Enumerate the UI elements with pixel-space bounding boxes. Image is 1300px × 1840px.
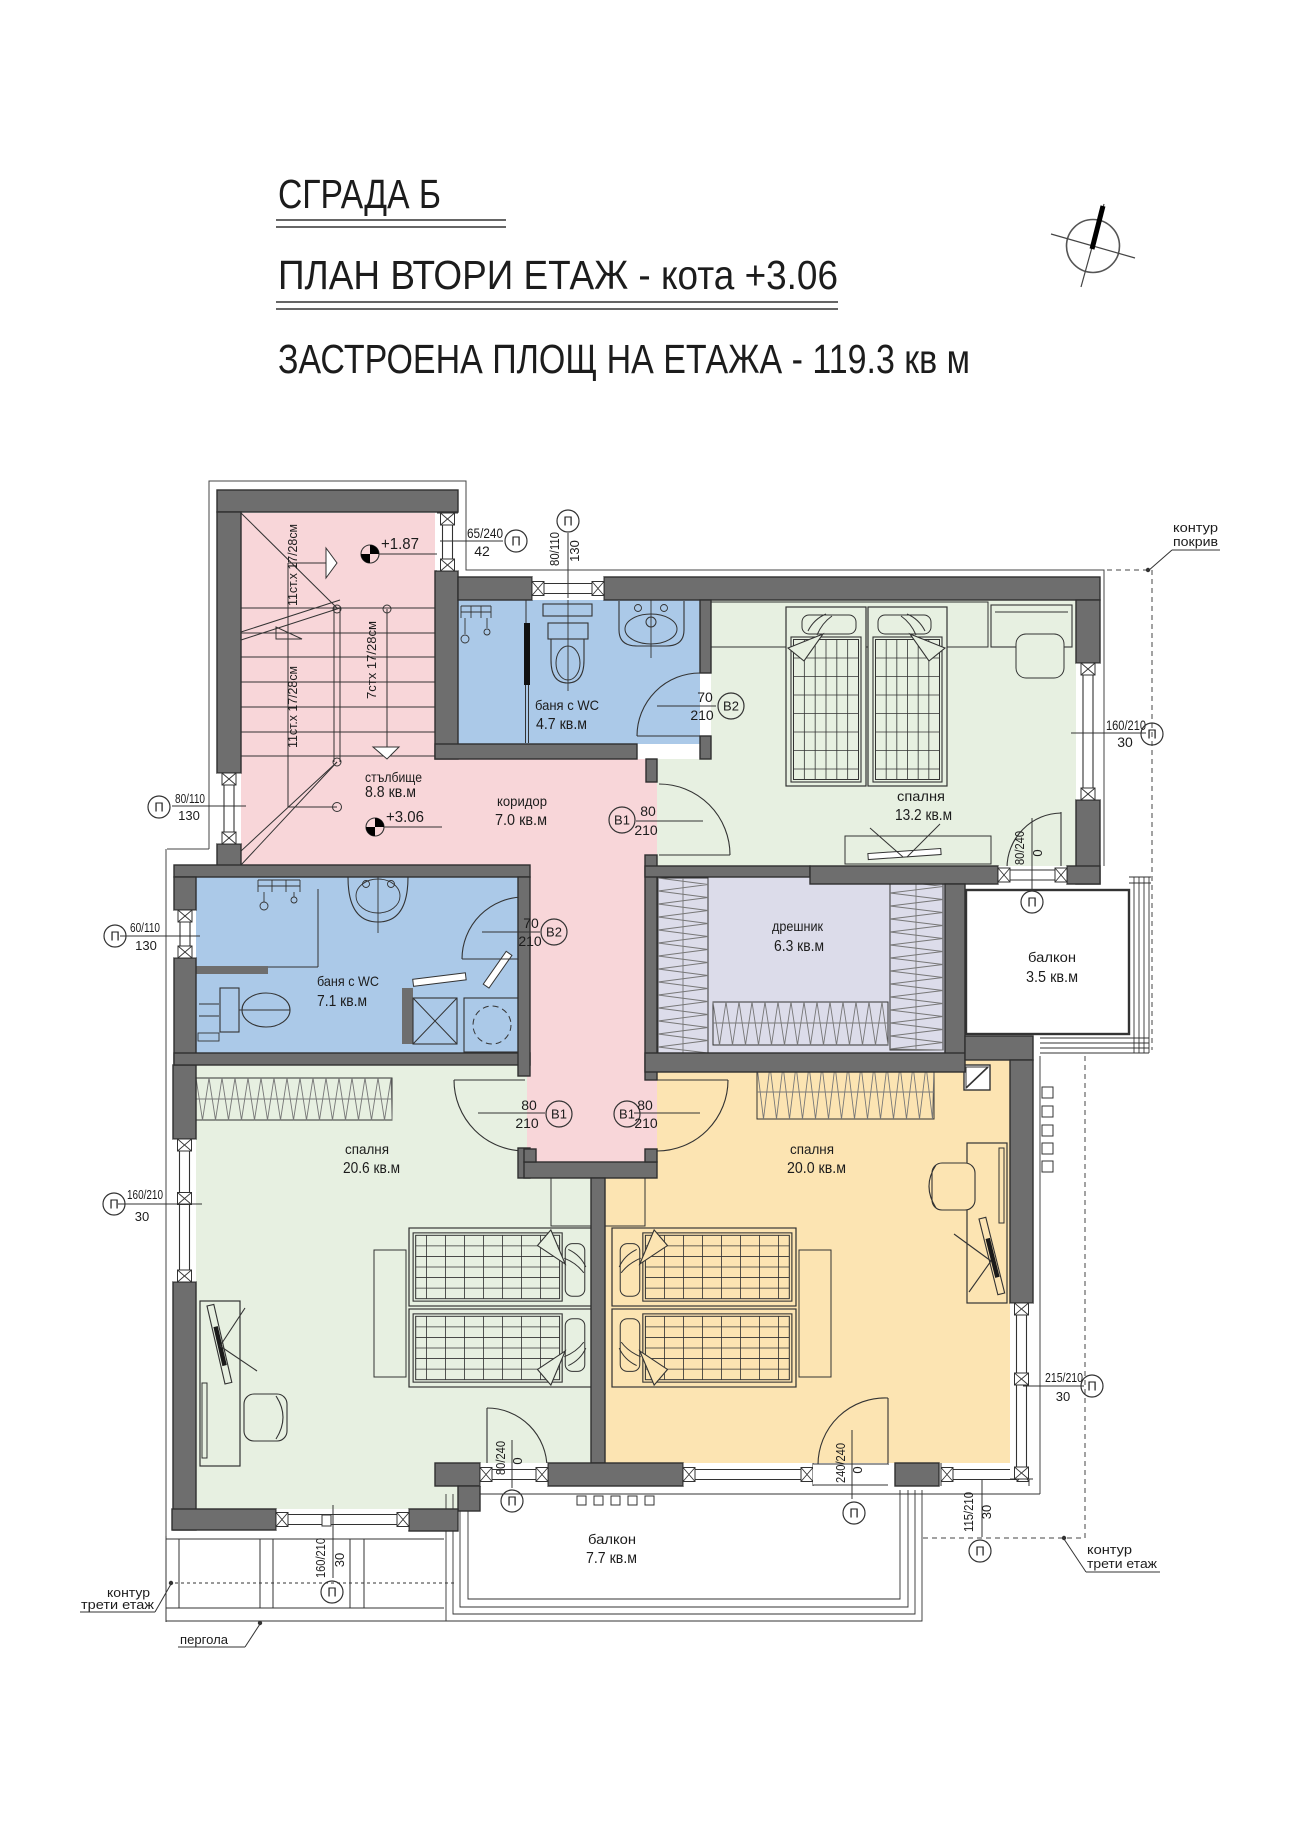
svg-text:30: 30: [1056, 1389, 1070, 1404]
svg-text:210: 210: [515, 1115, 539, 1131]
svg-text:спалня: спалня: [345, 1141, 389, 1157]
svg-text:контур: контур: [1087, 1542, 1132, 1557]
svg-text:80: 80: [637, 1097, 653, 1113]
svg-text:+1.87: +1.87: [381, 536, 419, 553]
svg-text:70: 70: [523, 915, 539, 931]
svg-text:В2: В2: [723, 699, 739, 714]
svg-text:контур: контур: [1173, 520, 1218, 535]
svg-text:СГРАДА Б: СГРАДА Б: [278, 171, 441, 217]
svg-text:П: П: [109, 1197, 118, 1212]
svg-text:160/210: 160/210: [313, 1538, 328, 1578]
svg-text:баня с WC: баня с WC: [317, 973, 379, 989]
svg-text:80/240: 80/240: [1012, 831, 1027, 865]
svg-text:баня с WC: баня с WC: [535, 697, 599, 713]
svg-text:П: П: [849, 1506, 858, 1521]
svg-text:В2: В2: [546, 925, 562, 940]
svg-text:8.8 кв.м: 8.8 кв.м: [365, 784, 416, 801]
svg-text:П: П: [1147, 727, 1156, 742]
svg-text:П: П: [327, 1585, 336, 1600]
svg-text:130: 130: [567, 540, 582, 562]
svg-text:30: 30: [1117, 734, 1133, 750]
svg-text:115/210: 115/210: [961, 1492, 976, 1532]
svg-text:130: 130: [135, 938, 157, 953]
svg-text:П: П: [154, 800, 163, 815]
svg-text:11ст.х 17/28см: 11ст.х 17/28см: [285, 524, 300, 606]
svg-text:спалня: спалня: [897, 788, 945, 804]
svg-text:П: П: [1027, 895, 1036, 910]
svg-text:7.1 кв.м: 7.1 кв.м: [317, 993, 367, 1010]
svg-text:7стх 17/28см: 7стх 17/28см: [364, 621, 379, 699]
svg-text:4.7 кв.м: 4.7 кв.м: [536, 716, 587, 733]
svg-text:80: 80: [640, 803, 656, 819]
svg-text:+3.06: +3.06: [386, 809, 424, 826]
svg-text:В1: В1: [551, 1107, 567, 1122]
svg-text:20.6 кв.м: 20.6 кв.м: [343, 1160, 400, 1177]
svg-text:3.5 кв.м: 3.5 кв.м: [1026, 969, 1078, 986]
svg-text:П: П: [1087, 1379, 1096, 1394]
svg-text:В1: В1: [614, 813, 630, 828]
svg-text:6.3 кв.м: 6.3 кв.м: [774, 938, 824, 955]
svg-text:балкон: балкон: [588, 1531, 636, 1547]
svg-text:80/240: 80/240: [493, 1441, 508, 1475]
svg-text:П: П: [511, 534, 520, 549]
svg-text:балкон: балкон: [1028, 949, 1076, 965]
svg-text:215/210: 215/210: [1045, 1370, 1083, 1385]
svg-text:65/240: 65/240: [467, 525, 503, 541]
svg-text:210: 210: [634, 1115, 658, 1131]
svg-text:спалня: спалня: [790, 1141, 834, 1157]
svg-text:80/110: 80/110: [175, 791, 205, 806]
svg-text:ПЛАН ВТОРИ ЕТАЖ - кота +3.06: ПЛАН ВТОРИ ЕТАЖ - кота +3.06: [278, 252, 838, 298]
svg-text:160/210: 160/210: [1106, 717, 1146, 733]
svg-text:80: 80: [521, 1097, 537, 1113]
svg-text:трети етаж: трети етаж: [81, 1597, 154, 1612]
svg-text:60/110: 60/110: [130, 920, 160, 935]
svg-text:210: 210: [518, 933, 542, 949]
svg-text:210: 210: [634, 822, 658, 838]
svg-text:70: 70: [697, 689, 713, 705]
svg-text:В1: В1: [619, 1107, 635, 1122]
svg-text:покрив: покрив: [1173, 534, 1218, 549]
svg-text:7.0 кв.м: 7.0 кв.м: [495, 812, 547, 829]
svg-text:стълбище: стълбище: [365, 769, 422, 785]
svg-text:П: П: [110, 929, 119, 944]
svg-text:7.7 кв.м: 7.7 кв.м: [586, 1550, 637, 1567]
svg-text:42: 42: [474, 543, 490, 559]
svg-text:210: 210: [690, 707, 714, 723]
svg-text:80/110: 80/110: [547, 532, 562, 566]
svg-text:30: 30: [332, 1553, 347, 1567]
svg-text:коридор: коридор: [497, 793, 547, 809]
svg-text:0: 0: [1030, 849, 1045, 856]
svg-text:П: П: [507, 1494, 516, 1509]
svg-text:П: П: [563, 514, 572, 529]
svg-text:П: П: [975, 1544, 984, 1559]
svg-text:трети етаж: трети етаж: [1087, 1556, 1157, 1571]
svg-text:160/210: 160/210: [127, 1187, 163, 1202]
svg-text:30: 30: [979, 1505, 994, 1519]
svg-text:пергола: пергола: [180, 1632, 229, 1647]
svg-text:30: 30: [135, 1209, 149, 1224]
svg-text:240/240: 240/240: [833, 1443, 848, 1483]
svg-text:13.2 кв.м: 13.2 кв.м: [895, 807, 952, 824]
svg-text:20.0 кв.м: 20.0 кв.м: [787, 1160, 846, 1177]
svg-text:0: 0: [510, 1457, 525, 1464]
svg-text:0: 0: [850, 1466, 865, 1473]
svg-text:дрешник: дрешник: [772, 918, 824, 934]
svg-text:ЗАСТРОЕНА ПЛОЩ НА ЕТАЖА - 119.: ЗАСТРОЕНА ПЛОЩ НА ЕТАЖА - 119.3 кв м: [278, 336, 970, 382]
svg-text:130: 130: [178, 808, 200, 823]
svg-text:11ст.х 17/28см: 11ст.х 17/28см: [285, 666, 300, 748]
